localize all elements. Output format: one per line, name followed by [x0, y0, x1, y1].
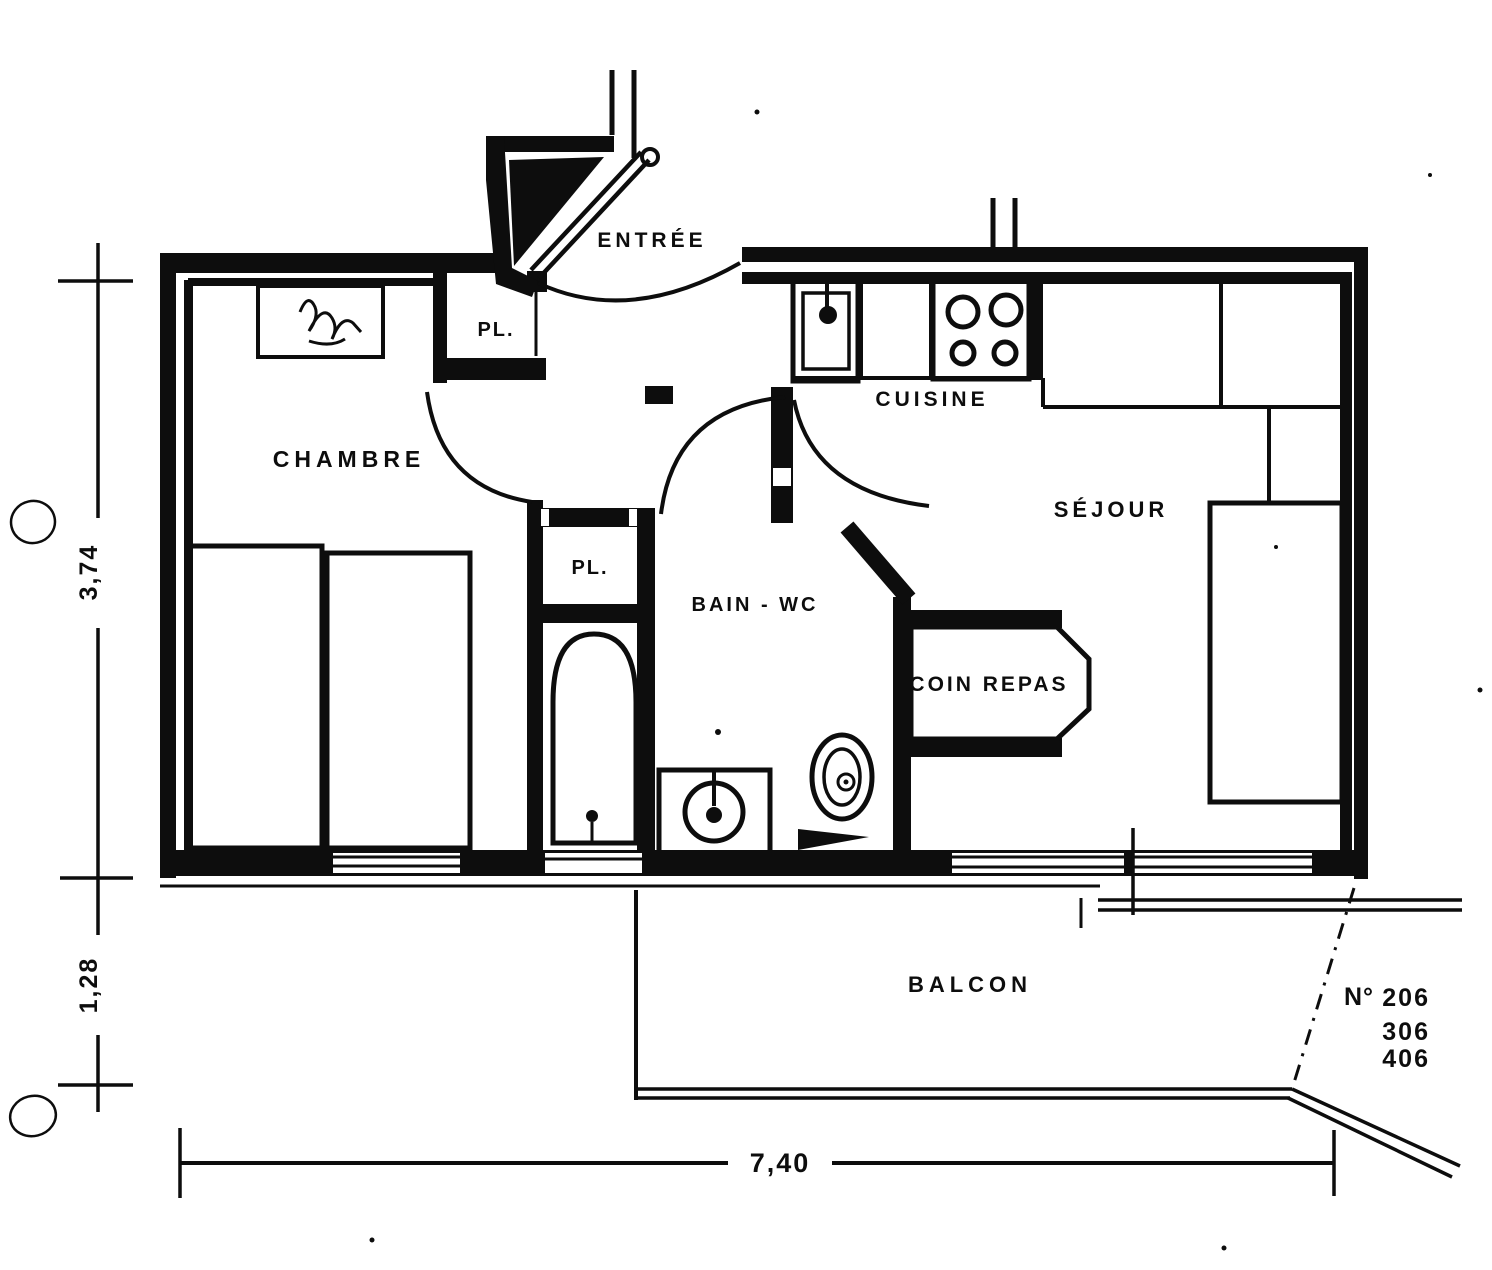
unit-number: 306 — [1382, 1018, 1430, 1046]
wall-bath-right — [771, 387, 793, 523]
entrance-door-swing — [538, 263, 740, 300]
unit-number: 406 — [1382, 1045, 1430, 1073]
label-bain-wc: BAIN - WC — [692, 594, 819, 616]
window-bain — [545, 853, 642, 873]
jamb-notch — [629, 509, 637, 526]
chambre-door-swing — [427, 392, 532, 502]
label-coin-repas: COIN REPAS — [909, 673, 1068, 696]
floor-plan-sheet: ENTRÉE CHAMBRE PL. PL. CUISINE SÉJOUR BA… — [0, 0, 1492, 1270]
washbasin-drain — [706, 807, 722, 823]
scan-speck — [755, 110, 760, 115]
unit-number: 206 — [1382, 984, 1430, 1012]
wall-closet1-bottom — [433, 358, 546, 380]
label-sejour: SÉJOUR — [1054, 497, 1168, 522]
burner — [991, 295, 1021, 325]
burner — [952, 342, 974, 364]
jamb-notch — [541, 509, 549, 526]
desk — [258, 286, 383, 357]
scan-speck — [715, 729, 721, 735]
floor-plan-drawing: ENTRÉE CHAMBRE PL. PL. CUISINE SÉJOUR BA… — [0, 0, 1492, 1270]
wall-coin-repas — [893, 597, 911, 853]
hole-punch-bottom — [6, 1091, 60, 1141]
wall-left-outer — [160, 253, 176, 878]
bed-left — [187, 546, 322, 848]
scan-speck — [1478, 688, 1483, 693]
entrance-door-panel — [509, 157, 604, 266]
burner — [994, 342, 1016, 364]
scan-speck — [1428, 173, 1432, 177]
kitchen-door-swing — [794, 400, 929, 506]
wall-bath-left — [637, 508, 655, 852]
label-closet2: PL. — [571, 557, 608, 579]
wall-vestibule-top — [486, 136, 614, 152]
tub-drain — [586, 810, 598, 822]
scan-speck — [1222, 1246, 1227, 1251]
dim-128: 1,28 — [75, 957, 103, 1014]
label-entree: ENTRÉE — [597, 229, 706, 252]
signature-scribble — [300, 301, 361, 344]
wall-chambre-right — [527, 500, 543, 855]
dim-740: 7,40 — [750, 1148, 811, 1178]
label-balcon: BALCON — [908, 972, 1032, 997]
bed-right — [327, 553, 470, 848]
bath-door-swing — [661, 397, 785, 514]
jamb-notch — [773, 468, 791, 486]
wc-door-panel — [798, 829, 869, 850]
wall-diagonal — [847, 527, 909, 599]
dim-374: 3,74 — [75, 544, 103, 601]
balcony-diagonal-edge — [1292, 1089, 1460, 1166]
balcony-diagonal-edge — [1288, 1098, 1452, 1177]
burner — [948, 297, 978, 327]
scan-speck — [1274, 545, 1278, 549]
door-hinge — [642, 149, 658, 165]
scan-speck — [370, 1238, 375, 1243]
label-cuisine: CUISINE — [875, 388, 988, 411]
sink-faucet-head — [819, 306, 837, 324]
jamb-bath-left — [645, 386, 673, 404]
unit-numbers: N° 206 306 406 — [1344, 983, 1430, 1073]
hole-punch-top — [7, 497, 59, 547]
wall-closet2-bottom — [527, 604, 655, 623]
wall-top-left — [160, 253, 510, 273]
wall-right-outer — [1354, 247, 1368, 879]
label-closet1: PL. — [477, 319, 514, 341]
wall-top-right-outer — [742, 247, 1368, 262]
unit-number-prefix: N° — [1344, 983, 1374, 1011]
label-chambre: CHAMBRE — [273, 446, 426, 472]
toilet-seat — [824, 749, 860, 805]
